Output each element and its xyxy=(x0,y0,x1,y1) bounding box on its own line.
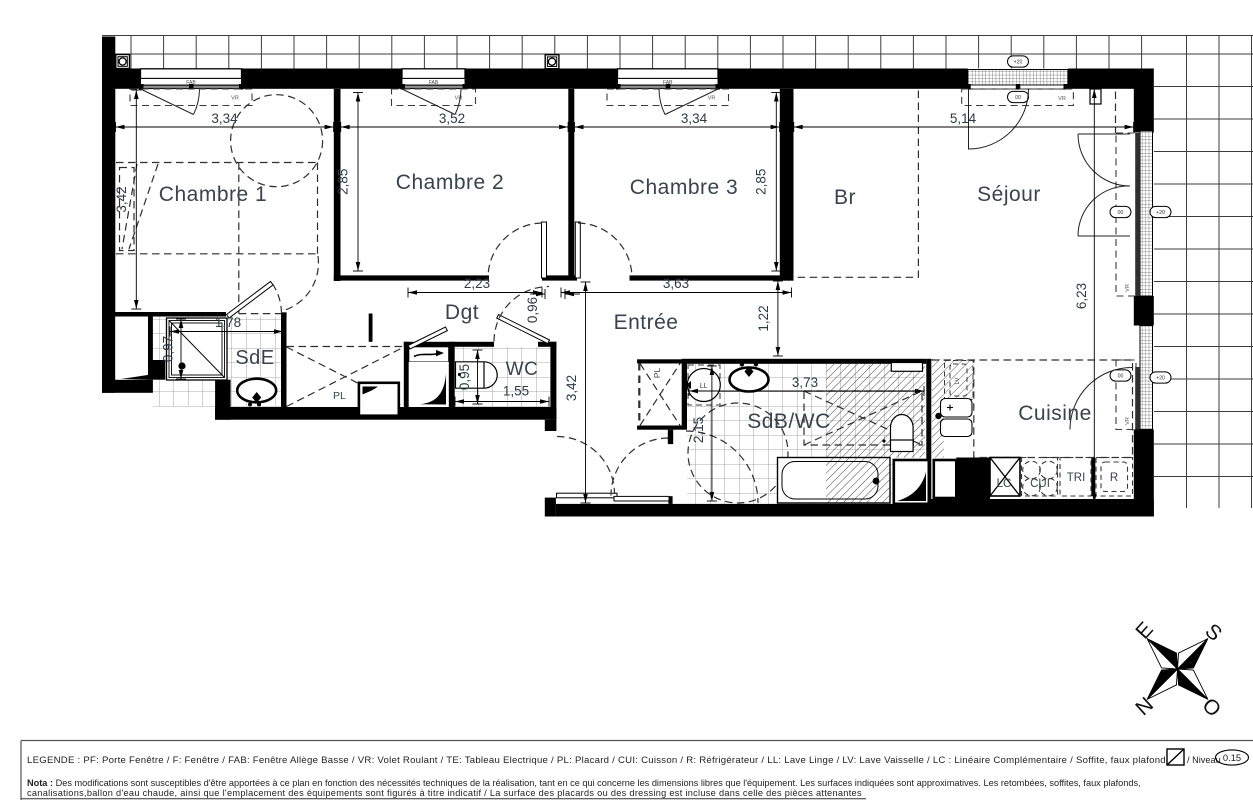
svg-text:Nota : Des modifications sont: Nota : Des modifications sont susceptibl… xyxy=(27,778,1141,788)
svg-text:Entrée: Entrée xyxy=(614,311,679,334)
svg-text:0.15: 0.15 xyxy=(1223,752,1241,763)
svg-text:SdB/WC: SdB/WC xyxy=(747,410,831,433)
svg-text:LC: LC xyxy=(997,478,1012,490)
svg-text:LL: LL xyxy=(700,383,708,390)
svg-text:2,15: 2,15 xyxy=(691,417,706,443)
svg-text:2,23: 2,23 xyxy=(464,276,490,291)
svg-text:3,34: 3,34 xyxy=(681,111,708,126)
svg-text:0,97: 0,97 xyxy=(161,336,176,362)
svg-text:6,23: 6,23 xyxy=(1074,283,1089,309)
svg-text:TRI: TRI xyxy=(1067,472,1086,484)
svg-text:VR: VR xyxy=(455,96,463,102)
svg-text:2,85: 2,85 xyxy=(754,169,769,195)
svg-text:Séjour: Séjour xyxy=(977,183,1041,206)
svg-text:1,55: 1,55 xyxy=(503,384,529,399)
svg-text:Chambre 2: Chambre 2 xyxy=(396,171,504,194)
svg-text:+20: +20 xyxy=(1156,375,1165,381)
svg-text:LV: LV xyxy=(955,378,961,385)
svg-text:VR: VR xyxy=(1125,284,1131,292)
svg-text:LEGENDE : PF: Porte Fenêtre /: LEGENDE : PF: Porte Fenêtre / F: Fenêtre… xyxy=(27,755,1166,766)
svg-text:Cuisine: Cuisine xyxy=(1018,402,1092,425)
svg-text:Chambre 3: Chambre 3 xyxy=(630,176,738,199)
svg-text:+20: +20 xyxy=(1014,59,1023,65)
svg-text:CUI: CUI xyxy=(1030,478,1050,490)
svg-text:3,34: 3,34 xyxy=(211,111,238,126)
svg-text:2,85: 2,85 xyxy=(336,169,351,195)
svg-text:Dgt: Dgt xyxy=(445,301,479,324)
svg-text:VR: VR xyxy=(1125,417,1131,425)
svg-text:3,42: 3,42 xyxy=(114,186,129,212)
svg-text:VR: VR xyxy=(708,96,716,102)
svg-text:Chambre 1: Chambre 1 xyxy=(159,183,267,206)
svg-text:Br: Br xyxy=(834,186,856,209)
svg-text:3,73: 3,73 xyxy=(792,375,818,390)
svg-text:0,95: 0,95 xyxy=(457,364,472,390)
svg-text:SdE: SdE xyxy=(235,347,274,369)
svg-text:+20: +20 xyxy=(1156,210,1165,216)
svg-text:R: R xyxy=(1110,472,1118,484)
svg-text:WC: WC xyxy=(506,359,539,380)
svg-text:PL: PL xyxy=(652,368,662,379)
svg-text:3,52: 3,52 xyxy=(439,111,465,126)
svg-text:1,22: 1,22 xyxy=(756,305,771,331)
svg-text:3,63: 3,63 xyxy=(663,276,689,291)
svg-text:canalisations,ballon d'eau cha: canalisations,ballon d'eau chaude, ainsi… xyxy=(27,788,862,798)
svg-text:0,96: 0,96 xyxy=(525,297,540,323)
svg-text:VR: VR xyxy=(1058,96,1066,102)
svg-text:3,42: 3,42 xyxy=(564,375,579,401)
svg-text:00: 00 xyxy=(1015,95,1021,101)
svg-text:00: 00 xyxy=(1118,373,1124,379)
svg-text:1,78: 1,78 xyxy=(215,315,241,330)
svg-text:PL: PL xyxy=(333,390,346,402)
svg-text:5,14: 5,14 xyxy=(950,111,977,126)
svg-text:00: 00 xyxy=(1118,210,1124,216)
svg-text:VR: VR xyxy=(231,96,239,102)
